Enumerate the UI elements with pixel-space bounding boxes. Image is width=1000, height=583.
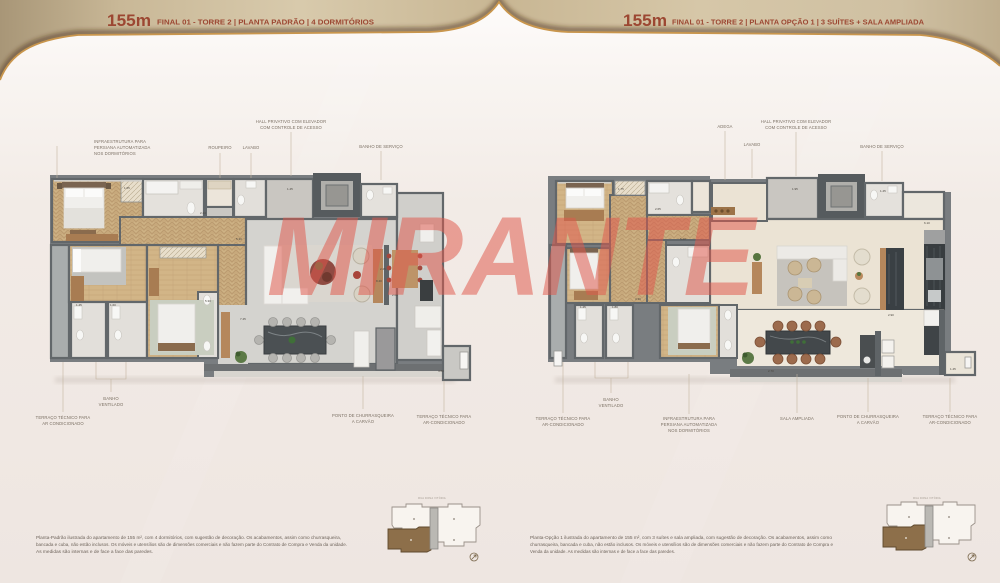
svg-text:Planta-Padrão ilustrada do apa: Planta-Padrão ilustrada do apartamento d… — [36, 535, 341, 541]
svg-text:1.45: 1.45 — [287, 187, 293, 191]
svg-text:INFRAESTRUTURA PARA: INFRAESTRUTURA PARA — [663, 416, 715, 421]
svg-text:bancada e cuba, não estão incl: bancada e cuba, não estão inclusos. Os m… — [36, 542, 347, 548]
svg-text:A CARVÃO: A CARVÃO — [352, 419, 375, 424]
svg-text:AR CONDICIONADO: AR CONDICIONADO — [42, 421, 84, 426]
svg-text:5.30: 5.30 — [205, 299, 211, 303]
svg-text:HALL PRIVATIVO COM ELEVADOR: HALL PRIVATIVO COM ELEVADOR — [256, 119, 327, 124]
svg-text:BANHO: BANHO — [103, 396, 119, 401]
svg-text:1.45: 1.45 — [76, 303, 82, 307]
svg-text:1.65: 1.65 — [124, 186, 130, 190]
svg-text:COM CONTROLE DE ACESSO: COM CONTROLE DE ACESSO — [260, 125, 322, 130]
svg-text:BANHO DE SERVIÇO: BANHO DE SERVIÇO — [359, 144, 403, 149]
svg-text:4.60: 4.60 — [438, 369, 444, 373]
svg-text:155m: 155m — [107, 12, 151, 30]
svg-text:2.70: 2.70 — [768, 369, 774, 373]
svg-text:BANHO DE SERVIÇO: BANHO DE SERVIÇO — [860, 144, 904, 149]
svg-text:2.90: 2.90 — [888, 313, 894, 317]
svg-text:AR-CONDICIONADO: AR-CONDICIONADO — [423, 420, 465, 425]
svg-text:VENTILADO: VENTILADO — [99, 402, 124, 407]
svg-text:1.45: 1.45 — [950, 367, 956, 371]
svg-text:Planta-Opção 1 ilustrada do ap: Planta-Opção 1 ilustrada do apartamento … — [530, 535, 832, 541]
svg-text:NOS DORMITÓRIOS: NOS DORMITÓRIOS — [668, 428, 710, 433]
svg-text:1.60: 1.60 — [110, 303, 116, 307]
svg-text:LAVABO: LAVABO — [744, 142, 761, 147]
svg-text:HALL PRIVATIVO COM ELEVADOR: HALL PRIVATIVO COM ELEVADOR — [761, 119, 832, 124]
svg-text:TERRAÇO TÉCNICO PARA: TERRAÇO TÉCNICO PARA — [923, 414, 978, 419]
svg-text:TERRAÇO TÉCNICO PARA: TERRAÇO TÉCNICO PARA — [36, 415, 91, 420]
svg-text:TERRAÇO TÉCNICO PARA: TERRAÇO TÉCNICO PARA — [417, 414, 472, 419]
svg-text:As medidas são internas e de f: As medidas são internas e de face a face… — [36, 549, 153, 555]
svg-text:FINAL 01 - TORRE 2 | PLANTA PA: FINAL 01 - TORRE 2 | PLANTA PADRÃO | 4 D… — [157, 18, 374, 27]
svg-text:AR-CONDICIONADO: AR-CONDICIONADO — [929, 420, 971, 425]
svg-text:Venda da unidade. As medidas s: Venda da unidade. As medidas são interna… — [530, 549, 675, 555]
svg-text:SALA AMPLIADA: SALA AMPLIADA — [780, 416, 814, 421]
svg-text:FINAL 01 - TORRE 2 | PLANTA OP: FINAL 01 - TORRE 2 | PLANTA OPÇÃO 1 | 3 … — [672, 18, 925, 27]
svg-text:INFRAESTRUTURA PARA: INFRAESTRUTURA PARA — [94, 139, 146, 144]
svg-text:PONTO DE CHURRASQUEIRA: PONTO DE CHURRASQUEIRA — [837, 414, 899, 419]
svg-text:MIRANTE: MIRANTE — [267, 194, 758, 319]
svg-text:NOS DORMITÓRIOS: NOS DORMITÓRIOS — [94, 151, 136, 156]
svg-text:1.45: 1.45 — [880, 189, 886, 193]
svg-text:6.10: 6.10 — [924, 221, 930, 225]
svg-text:5.30: 5.30 — [236, 237, 242, 241]
svg-text:BANHO: BANHO — [603, 397, 619, 402]
svg-text:PONTO DE CHURRASQUEIRA: PONTO DE CHURRASQUEIRA — [332, 413, 394, 418]
svg-text:A CARVÃO: A CARVÃO — [857, 420, 880, 425]
svg-text:AR-CONDICIONADO: AR-CONDICIONADO — [542, 422, 584, 427]
svg-text:1.75: 1.75 — [618, 187, 624, 191]
svg-text:churrasqueira, bancada e cuba,: churrasqueira, bancada e cuba, não estão… — [530, 542, 833, 548]
svg-text:COM CONTROLE DE ACESSO: COM CONTROLE DE ACESSO — [765, 125, 827, 130]
svg-text:7.45: 7.45 — [240, 317, 246, 321]
svg-text:PERSIANA AUTOMATIZADA: PERSIANA AUTOMATIZADA — [661, 422, 718, 427]
svg-text:155m: 155m — [623, 12, 667, 30]
svg-text:ROUPEIRO: ROUPEIRO — [208, 145, 232, 150]
svg-text:2.44: 2.44 — [200, 211, 206, 215]
svg-text:VENTILADO: VENTILADO — [599, 403, 624, 408]
svg-text:TERRAÇO TÉCNICO PARA: TERRAÇO TÉCNICO PARA — [536, 416, 591, 421]
svg-text:PERSIANA AUTOMATIZADA: PERSIANA AUTOMATIZADA — [94, 145, 151, 150]
svg-text:ADEGA: ADEGA — [717, 124, 732, 129]
svg-text:1.95: 1.95 — [792, 187, 798, 191]
svg-text:LAVABO: LAVABO — [243, 145, 260, 150]
